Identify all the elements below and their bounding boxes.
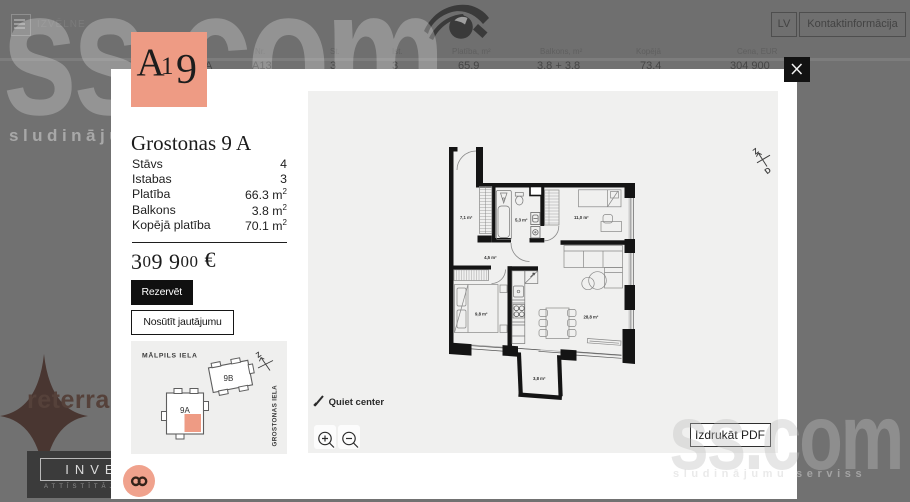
svg-text:28,8 m²: 28,8 m²	[583, 315, 598, 320]
svg-text:9,8 m²: 9,8 m²	[475, 312, 488, 317]
svg-text:9B: 9B	[224, 374, 234, 383]
svg-text:GROSTONAS IELA: GROSTONAS IELA	[272, 384, 279, 446]
svg-text:3,8 m²: 3,8 m²	[533, 376, 546, 381]
svg-text:7,1 m²: 7,1 m²	[459, 215, 472, 220]
svg-text:MĀLPILS IELA: MĀLPILS IELA	[142, 351, 198, 359]
svg-text:11,0 m²: 11,0 m²	[574, 215, 589, 220]
svg-text:4,5 m²: 4,5 m²	[484, 255, 497, 260]
svg-text:9A: 9A	[180, 406, 190, 415]
svg-text:reterra: reterra	[27, 386, 110, 414]
svg-text:5,3 m²: 5,3 m²	[515, 218, 528, 223]
